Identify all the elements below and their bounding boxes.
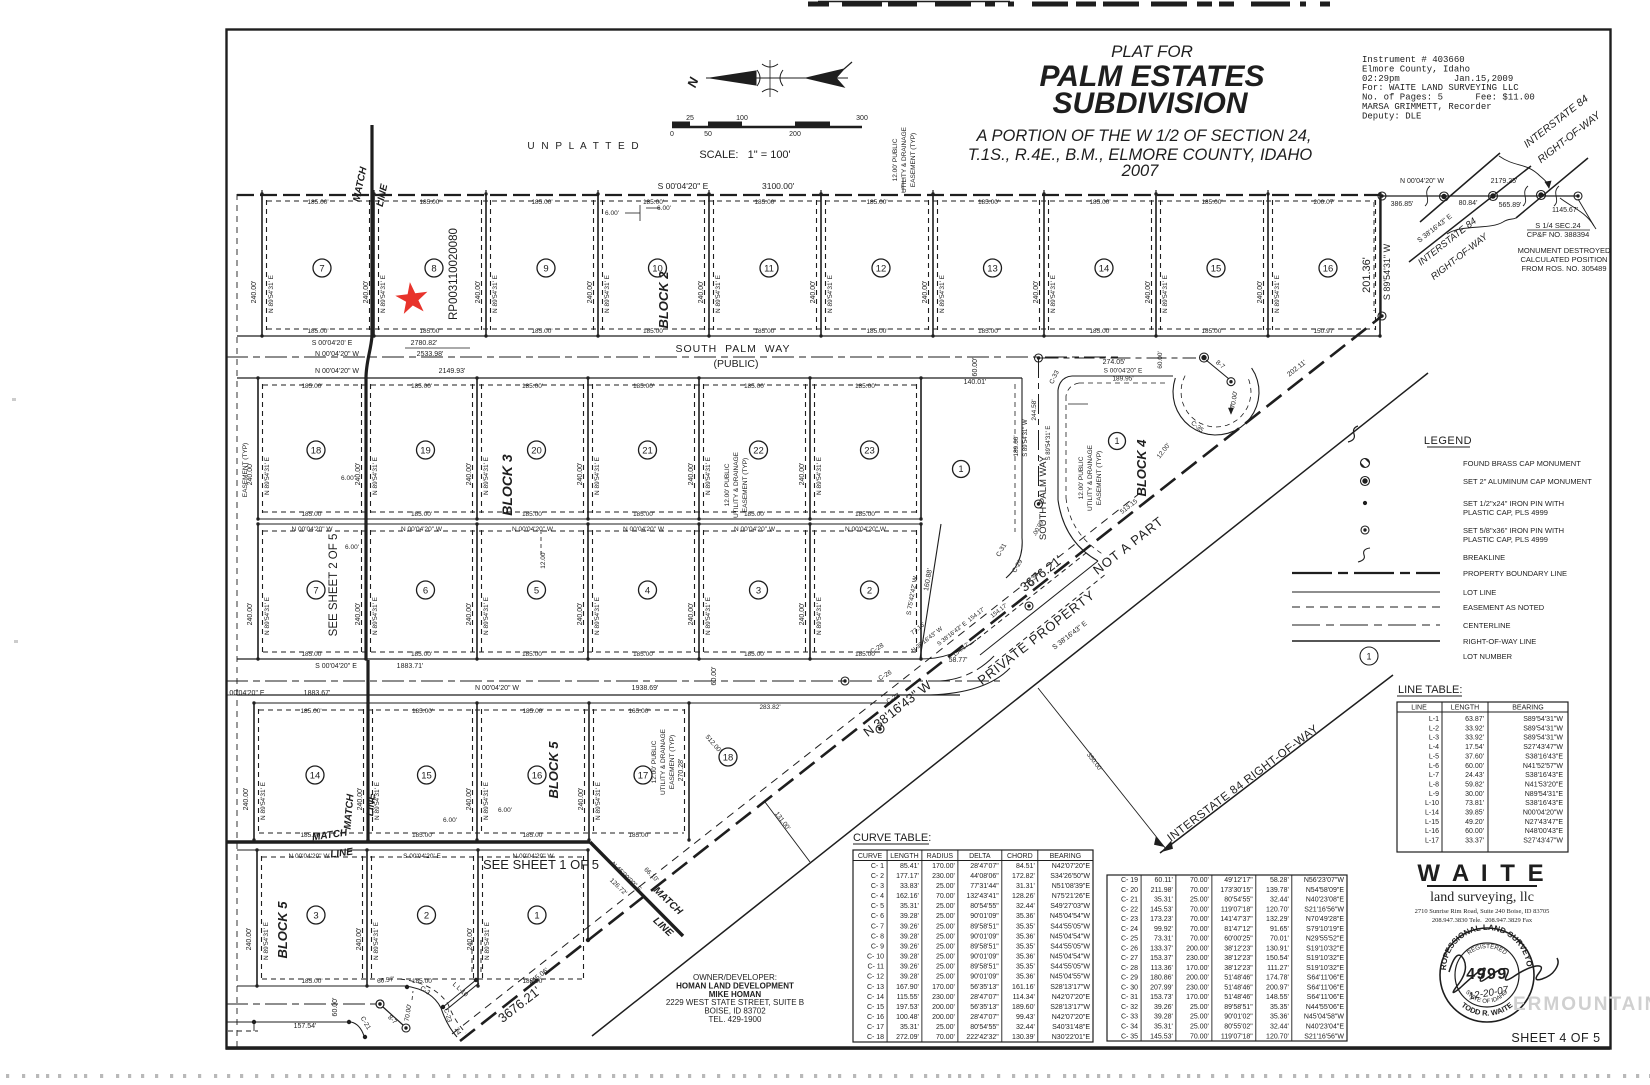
svg-text:60.00': 60.00' xyxy=(1465,763,1484,770)
svg-text:BEARING: BEARING xyxy=(1512,705,1544,712)
svg-text:N 00'04'20" W: N 00'04'20" W xyxy=(315,351,359,358)
svg-text:51'48'46": 51'48'46" xyxy=(1224,975,1253,982)
svg-text:37.60': 37.60' xyxy=(1465,753,1484,760)
svg-text:SCALE: 1" = 100': SCALE: 1" = 100' xyxy=(699,149,790,161)
svg-text:L-16: L-16 xyxy=(1425,828,1439,835)
svg-text:N42'07'20"E: N42'07'20"E xyxy=(1052,863,1091,870)
svg-text:12: 12 xyxy=(876,263,887,274)
svg-text:185.00': 185.00' xyxy=(522,832,543,839)
svg-text:165.00': 165.00' xyxy=(628,708,649,715)
svg-text:185.00': 185.00' xyxy=(633,383,654,390)
svg-text:N45'04'55"W: N45'04'55"W xyxy=(1050,974,1091,981)
svg-text:N 00'04'20" W: N 00'04'20" W xyxy=(845,526,887,533)
svg-text:39.26': 39.26' xyxy=(900,964,919,971)
svg-text:240.00': 240.00' xyxy=(246,928,253,951)
svg-text:200.00': 200.00' xyxy=(932,1014,955,1021)
svg-text:S34'26'50"W: S34'26'50"W xyxy=(1050,873,1090,880)
svg-text:Deputy: DLE: Deputy: DLE xyxy=(1362,111,1421,121)
svg-text:PROPERTY BOUNDARY LINE: PROPERTY BOUNDARY LINE xyxy=(1463,569,1567,578)
svg-text:32.44': 32.44' xyxy=(1016,903,1035,910)
svg-text:14: 14 xyxy=(310,770,321,781)
svg-text:S19'10'32"E: S19'10'32"E xyxy=(1306,955,1344,962)
svg-text:N 89'54'31' E: N 89'54'31' E xyxy=(373,921,380,960)
svg-text:2149.93': 2149.93' xyxy=(439,368,466,375)
svg-text:SEE SHEET 2 OF 5: SEE SHEET 2 OF 5 xyxy=(328,534,340,637)
svg-text:EASEMENT (TYP): EASEMENT (TYP) xyxy=(1096,451,1103,505)
svg-text:N 89'54'31' E: N 89'54'31' E xyxy=(594,456,601,495)
svg-text:25.00': 25.00' xyxy=(936,974,955,981)
svg-text:33.83': 33.83' xyxy=(900,883,919,890)
svg-text:N27'43'47"E: N27'43'47"E xyxy=(1525,819,1564,826)
svg-text:L-7: L-7 xyxy=(1429,772,1439,779)
svg-text:130.39': 130.39' xyxy=(1012,1034,1035,1041)
svg-text:28'47'07": 28'47'07" xyxy=(970,863,999,870)
svg-text:39.28': 39.28' xyxy=(900,933,919,940)
svg-text:38'12'23": 38'12'23" xyxy=(1224,955,1253,962)
svg-text:185.00': 185.00' xyxy=(855,511,876,518)
svg-text:2780.82': 2780.82' xyxy=(411,340,438,347)
svg-text:2710 Sunrise Rim Road, Suite 2: 2710 Sunrise Rim Road, Suite 240 Boise, … xyxy=(1415,908,1550,915)
svg-text:17: 17 xyxy=(638,770,649,781)
svg-text:1883.67': 1883.67' xyxy=(304,690,331,697)
svg-text:U N P L A T T E D: U N P L A T T E D xyxy=(527,141,640,152)
svg-text:N40'23'04"E: N40'23'04"E xyxy=(1306,1024,1345,1031)
svg-text:N 89'54'31' E: N 89'54'31' E xyxy=(939,274,946,313)
svg-text:230.00': 230.00' xyxy=(932,994,955,1001)
svg-text:N 89'54'31' E: N 89'54'31' E xyxy=(268,274,275,313)
svg-text:70.00': 70.00' xyxy=(1190,926,1209,933)
svg-text:C- 14: C- 14 xyxy=(867,994,884,1001)
svg-text:C- 16: C- 16 xyxy=(867,1014,884,1021)
svg-text:C- 26: C- 26 xyxy=(1121,945,1138,952)
svg-text:CP&F NO. 388394: CP&F NO. 388394 xyxy=(1527,230,1590,239)
svg-text:32.44': 32.44' xyxy=(1270,1024,1289,1031)
svg-text:85.41': 85.41' xyxy=(900,863,919,870)
svg-text:C- 32: C- 32 xyxy=(1121,1004,1138,1011)
svg-text:9: 9 xyxy=(543,263,548,274)
svg-text:N 89'54'31' E: N 89'54'31' E xyxy=(264,596,271,635)
svg-text:CURVE TABLE:: CURVE TABLE: xyxy=(853,832,931,844)
svg-text:185.00': 185.00' xyxy=(300,708,321,715)
svg-text:N 89'54'31' E: N 89'54'31' E xyxy=(484,921,491,960)
svg-text:N 89'54'31' E: N 89'54'31' E xyxy=(705,456,712,495)
svg-text:207.99': 207.99' xyxy=(1150,984,1173,991)
svg-text:N 89'54'31' E: N 89'54'31' E xyxy=(264,456,271,495)
svg-text:1: 1 xyxy=(958,464,963,474)
svg-text:BLOCK 5: BLOCK 5 xyxy=(275,901,290,959)
svg-text:50: 50 xyxy=(704,131,712,138)
svg-text:N51'08'39"E: N51'08'39"E xyxy=(1052,883,1091,890)
svg-text:230.00': 230.00' xyxy=(1186,955,1209,962)
svg-text:CURVE: CURVE xyxy=(858,853,883,860)
svg-text:6.00': 6.00' xyxy=(498,807,512,814)
svg-text:185.00': 185.00' xyxy=(419,199,440,206)
svg-text:240.00': 240.00' xyxy=(466,463,473,486)
svg-text:80'54'55": 80'54'55" xyxy=(970,1024,999,1031)
svg-text:22: 22 xyxy=(753,445,764,456)
svg-text:200.07': 200.07' xyxy=(1313,199,1334,206)
svg-text:70.01': 70.01' xyxy=(1270,936,1289,943)
svg-text:80'55'02": 80'55'02" xyxy=(1224,1024,1253,1031)
svg-text:35.31': 35.31' xyxy=(1154,1024,1173,1031)
svg-text:174.78': 174.78' xyxy=(1266,975,1289,982)
svg-text:185.00': 185.00' xyxy=(522,383,543,390)
svg-text:565.89': 565.89' xyxy=(1499,202,1522,209)
svg-text:1883.71': 1883.71' xyxy=(397,663,424,670)
svg-text:185.00': 185.00' xyxy=(522,511,543,518)
svg-text:S44'55'05"W: S44'55'05"W xyxy=(1050,964,1090,971)
svg-text:240.00': 240.00' xyxy=(243,788,250,811)
svg-text:4: 4 xyxy=(645,585,650,596)
svg-text:51'48'46": 51'48'46" xyxy=(1224,994,1253,1001)
svg-text:200.00': 200.00' xyxy=(932,1004,955,1011)
svg-text:C- 23: C- 23 xyxy=(1121,916,1138,923)
svg-text:RP003110020080: RP003110020080 xyxy=(448,228,460,320)
svg-text:240.00': 240.00' xyxy=(475,281,482,304)
svg-text:120.70': 120.70' xyxy=(1266,1033,1289,1040)
svg-text:1: 1 xyxy=(1366,652,1371,662)
svg-text:N 89'54'31' E: N 89'54'31' E xyxy=(604,274,611,313)
svg-text:240.00': 240.00' xyxy=(363,281,370,304)
svg-text:185.00': 185.00' xyxy=(855,383,876,390)
svg-text:S27'43'47"W: S27'43'47"W xyxy=(1523,838,1563,845)
svg-text:LOT NUMBER: LOT NUMBER xyxy=(1463,652,1513,661)
svg-text:81'47'12": 81'47'12" xyxy=(1224,926,1253,933)
svg-text:BLOCK 4: BLOCK 4 xyxy=(1134,439,1149,497)
svg-text:17.54': 17.54' xyxy=(1465,744,1484,751)
svg-text:N00'04'20"W: N00'04'20"W xyxy=(1523,810,1564,817)
svg-text:C- 7: C- 7 xyxy=(871,923,884,930)
svg-text:240.00': 240.00' xyxy=(466,603,473,626)
svg-text:25.00': 25.00' xyxy=(936,1024,955,1031)
svg-text:189.60': 189.60' xyxy=(1012,1004,1035,1011)
svg-text:L-15: L-15 xyxy=(1425,819,1439,826)
svg-text:TEL. 429-1900: TEL. 429-1900 xyxy=(709,1015,762,1024)
svg-text:185.00': 185.00' xyxy=(978,328,999,335)
svg-text:130.91': 130.91' xyxy=(1266,945,1289,952)
svg-text:1938.69': 1938.69' xyxy=(632,685,659,692)
svg-text:150.97': 150.97' xyxy=(1313,328,1334,335)
svg-text:PLASTIC CAP, PLS 4999: PLASTIC CAP, PLS 4999 xyxy=(1463,535,1548,544)
svg-text:200.00': 200.00' xyxy=(1186,975,1209,982)
svg-text:N45'04'54"W: N45'04'54"W xyxy=(1050,933,1091,940)
svg-text:180.86': 180.86' xyxy=(1150,975,1173,982)
svg-text:S28'13'17"W: S28'13'17"W xyxy=(1050,984,1090,991)
svg-text:84.51': 84.51' xyxy=(1016,863,1035,870)
svg-text:39.26': 39.26' xyxy=(1154,1004,1173,1011)
svg-text:33.92': 33.92' xyxy=(1465,725,1484,732)
svg-text:S 00'04'20' E: S 00'04'20' E xyxy=(312,340,353,347)
svg-text:33.92': 33.92' xyxy=(1465,735,1484,742)
svg-text:170.00': 170.00' xyxy=(1186,965,1209,972)
svg-text:39.28': 39.28' xyxy=(900,974,919,981)
svg-text:BREAKLINE: BREAKLINE xyxy=(1463,553,1505,562)
svg-text:200.97': 200.97' xyxy=(1266,984,1289,991)
svg-text:1: 1 xyxy=(534,910,539,921)
svg-text:LENGTH: LENGTH xyxy=(890,853,918,860)
svg-text:C- 35: C- 35 xyxy=(1121,1033,1138,1040)
svg-text:UTILITY & DRAINAGE: UTILITY & DRAINAGE xyxy=(1087,444,1094,511)
svg-text:6.00': 6.00' xyxy=(605,210,619,217)
svg-text:N 89'54'31' E: N 89'54'31' E xyxy=(715,274,722,313)
svg-text:SOUTH PALM WAY: SOUTH PALM WAY xyxy=(676,343,791,355)
svg-text:C- 21: C- 21 xyxy=(1121,897,1138,904)
svg-text:S 89'54'31' E: S 89'54'31' E xyxy=(1046,426,1052,461)
svg-text:25.00': 25.00' xyxy=(936,943,955,950)
svg-text:EASEMENT (TYP): EASEMENT (TYP) xyxy=(742,458,749,512)
svg-text:S79'10'19"E: S79'10'19"E xyxy=(1306,926,1344,933)
svg-text:N 00'04'20" W: N 00'04'20" W xyxy=(401,526,443,533)
svg-text:S 89'54'31" W: S 89'54'31" W xyxy=(1023,419,1029,457)
svg-text:141'47'37": 141'47'37" xyxy=(1220,916,1253,923)
svg-text:25.00': 25.00' xyxy=(1190,1014,1209,1021)
svg-text:N 89'54'31' E: N 89'54'31' E xyxy=(595,781,602,820)
svg-text:N 89'54'31' E: N 89'54'31' E xyxy=(483,781,490,820)
svg-text:MONUMENT DESTROYED: MONUMENT DESTROYED xyxy=(1518,246,1611,255)
svg-text:N 89'54'31' E: N 89'54'31' E xyxy=(816,596,823,635)
svg-text:35.36': 35.36' xyxy=(1016,913,1035,920)
svg-text:11: 11 xyxy=(764,263,774,274)
svg-text:C- 31: C- 31 xyxy=(1121,994,1138,1001)
svg-text:C- 20: C- 20 xyxy=(1121,887,1138,894)
svg-text:N 00'04'20" W: N 00'04'20" W xyxy=(315,368,359,375)
svg-text:274.05': 274.05' xyxy=(1103,359,1126,366)
svg-text:111.27': 111.27' xyxy=(1267,965,1289,972)
svg-text:C- 3: C- 3 xyxy=(871,883,884,890)
svg-text:25.00': 25.00' xyxy=(936,923,955,930)
svg-text:S 00'04'20' E: S 00'04'20' E xyxy=(403,853,441,860)
svg-text:128.26': 128.26' xyxy=(1012,893,1035,900)
svg-text:EASEMENT (TYP): EASEMENT (TYP) xyxy=(242,443,249,497)
svg-text:N29'55'52"E: N29'55'52"E xyxy=(1306,936,1345,943)
svg-text:89'58'51": 89'58'51" xyxy=(970,923,999,930)
svg-text:N41'53'20"E: N41'53'20"E xyxy=(1525,781,1564,788)
svg-text:C- 15: C- 15 xyxy=(867,1004,884,1011)
svg-text:C- 34: C- 34 xyxy=(1121,1024,1138,1031)
svg-text:UTILITY & DRAINAGE: UTILITY & DRAINAGE xyxy=(901,126,908,193)
svg-text:240.00': 240.00' xyxy=(247,603,254,626)
svg-text:119'07'18": 119'07'18" xyxy=(1221,906,1253,913)
svg-text:240.00': 240.00' xyxy=(688,603,695,626)
svg-text:C- 27: C- 27 xyxy=(1121,955,1138,962)
svg-text:49'12'17": 49'12'17" xyxy=(1224,877,1253,884)
svg-text:173.23': 173.23' xyxy=(1150,916,1173,923)
svg-text:C- 6: C- 6 xyxy=(871,913,884,920)
svg-text:L-9: L-9 xyxy=(1429,791,1439,798)
svg-text:S89'54'31"W: S89'54'31"W xyxy=(1523,716,1563,723)
svg-text:39.26': 39.26' xyxy=(900,943,919,950)
svg-text:LEGEND: LEGEND xyxy=(1424,435,1472,447)
svg-text:N 89'54'31' E: N 89'54'31' E xyxy=(705,596,712,635)
svg-text:185.00': 185.00' xyxy=(754,328,775,335)
svg-text:150.54': 150.54' xyxy=(1266,955,1289,962)
svg-text:162.16': 162.16' xyxy=(896,893,919,900)
svg-text:89'58'51": 89'58'51" xyxy=(970,964,999,971)
svg-text:UTILITY & DRAINAGE: UTILITY & DRAINAGE xyxy=(660,728,667,795)
svg-text:2: 2 xyxy=(867,585,872,596)
svg-text:35.36': 35.36' xyxy=(1016,933,1035,940)
svg-text:189.95': 189.95' xyxy=(1112,376,1133,383)
svg-text:CHORD: CHORD xyxy=(1007,853,1033,860)
svg-text:N54'58'09"E: N54'58'09"E xyxy=(1306,887,1345,894)
svg-text:99.92': 99.92' xyxy=(1154,926,1173,933)
svg-text:N56'23'07"W: N56'23'07"W xyxy=(1304,877,1345,884)
svg-text:35.36': 35.36' xyxy=(1270,1014,1289,1021)
svg-text:S27'43'47"W: S27'43'47"W xyxy=(1523,744,1563,751)
svg-text:N 89'54'31' E: N 89'54'31' E xyxy=(816,456,823,495)
svg-text:240.00': 240.00' xyxy=(1033,281,1040,304)
svg-text:153.37': 153.37' xyxy=(1150,955,1173,962)
svg-text:N75'21'26"E: N75'21'26"E xyxy=(1052,893,1091,900)
svg-text:185.00': 185.00' xyxy=(1089,199,1110,206)
svg-text:LOT LINE: LOT LINE xyxy=(1463,588,1496,597)
svg-text:A PORTION OF THE W 1/2 OF SECT: A PORTION OF THE W 1/2 OF SECTION 24, xyxy=(976,127,1312,145)
svg-text:35.35': 35.35' xyxy=(1016,923,1035,930)
svg-text:L-1: L-1 xyxy=(1429,716,1439,723)
svg-text:31.31': 31.31' xyxy=(1016,883,1035,890)
svg-text:59.82': 59.82' xyxy=(1465,781,1484,788)
svg-text:28'47'07": 28'47'07" xyxy=(970,994,999,1001)
svg-text:167.90': 167.90' xyxy=(896,984,919,991)
svg-text:139.78': 139.78' xyxy=(1266,887,1289,894)
svg-text:185.00': 185.00' xyxy=(1089,328,1110,335)
svg-text:N 89'54'31' E: N 89'54'31' E xyxy=(483,456,490,495)
svg-text:C- 28: C- 28 xyxy=(1121,965,1138,972)
svg-text:35.35': 35.35' xyxy=(1016,943,1035,950)
svg-text:77'31'44": 77'31'44" xyxy=(970,883,999,890)
svg-text:197.53': 197.53' xyxy=(896,1004,919,1011)
svg-text:16: 16 xyxy=(532,770,543,781)
svg-text:185.00': 185.00' xyxy=(744,383,765,390)
svg-text:C- 4: C- 4 xyxy=(871,893,884,900)
svg-text:RIGHT-OF-WAY LINE: RIGHT-OF-WAY LINE xyxy=(1463,637,1536,646)
svg-text:60'00'25": 60'00'25" xyxy=(1224,936,1253,943)
svg-text:185.00': 185.00' xyxy=(633,651,654,658)
svg-text:N 00'04'20" W: N 00'04'20" W xyxy=(734,526,776,533)
svg-text:185.00': 185.00' xyxy=(978,199,999,206)
svg-text:56'35'13": 56'35'13" xyxy=(970,1004,999,1011)
svg-text:230.00': 230.00' xyxy=(1186,984,1209,991)
svg-text:SET 2" ALUMINUM CAP MONUMENT: SET 2" ALUMINUM CAP MONUMENT xyxy=(1463,477,1592,486)
svg-text:C- 19: C- 19 xyxy=(1121,877,1138,884)
svg-text:S38'16'43"E: S38'16'43"E xyxy=(1525,772,1563,779)
svg-text:70.00': 70.00' xyxy=(1190,877,1209,884)
svg-text:133.37': 133.37' xyxy=(1150,945,1173,952)
svg-text:1: 1 xyxy=(1114,436,1119,446)
svg-text:90'01'09": 90'01'09" xyxy=(970,954,999,961)
svg-text:0: 0 xyxy=(670,131,674,138)
svg-text:S19'10'32"E: S19'10'32"E xyxy=(1306,965,1344,972)
svg-text:SUBDIVISION: SUBDIVISION xyxy=(1052,87,1248,120)
svg-text:70.00': 70.00' xyxy=(1190,906,1209,913)
svg-text:N30'22'01"E: N30'22'01"E xyxy=(1052,1034,1091,1041)
svg-text:C- 30: C- 30 xyxy=(1121,984,1138,991)
svg-text:240.00': 240.00' xyxy=(577,463,584,486)
svg-text:6.00': 6.00' xyxy=(443,817,457,824)
svg-text:3: 3 xyxy=(313,910,318,921)
svg-text:C- 22: C- 22 xyxy=(1121,906,1138,913)
svg-text:240.00': 240.00' xyxy=(466,788,473,811)
svg-text:7: 7 xyxy=(313,585,318,596)
svg-text:C- 10: C- 10 xyxy=(867,954,884,961)
svg-text:N48'00'43"E: N48'00'43"E xyxy=(1525,828,1564,835)
svg-text:185.00': 185.00' xyxy=(301,651,322,658)
svg-text:S21'16'56"W: S21'16'56"W xyxy=(1304,1033,1344,1040)
svg-text:38'12'23": 38'12'23" xyxy=(1224,965,1253,972)
svg-text:13: 13 xyxy=(987,263,998,274)
svg-text:185.00': 185.00' xyxy=(744,651,765,658)
svg-text:S28'13'17"W: S28'13'17"W xyxy=(1050,1004,1090,1011)
svg-text:N 89'54'31' E: N 89'54'31' E xyxy=(492,274,499,313)
svg-text:N 00'04'20" W: N 00'04'20" W xyxy=(289,853,331,860)
svg-text:C- 12: C- 12 xyxy=(867,974,884,981)
svg-text:35.36': 35.36' xyxy=(1016,954,1035,961)
svg-text:35.36': 35.36' xyxy=(1016,974,1035,981)
svg-text:240.00': 240.00' xyxy=(799,603,806,626)
svg-text:140.01': 140.01' xyxy=(964,379,987,386)
svg-text:25.00': 25.00' xyxy=(936,913,955,920)
svg-text:2533.98': 2533.98' xyxy=(417,351,444,358)
svg-text:6: 6 xyxy=(423,585,428,596)
svg-text:BEARING: BEARING xyxy=(1050,853,1082,860)
svg-text:60.00': 60.00' xyxy=(1157,351,1164,369)
svg-text:L-8: L-8 xyxy=(1429,781,1439,788)
svg-text:25.00': 25.00' xyxy=(936,964,955,971)
svg-text:58.77': 58.77' xyxy=(949,657,968,664)
svg-text:BLOCK 3: BLOCK 3 xyxy=(499,454,515,516)
svg-text:172.82': 172.82' xyxy=(1012,873,1035,880)
svg-text:5: 5 xyxy=(534,585,539,596)
svg-text:N 89'54'31' E: N 89'54'31' E xyxy=(374,781,381,820)
svg-text:N 89'54'31' E: N 89'54'31' E xyxy=(372,596,379,635)
svg-text:35.31': 35.31' xyxy=(1154,897,1173,904)
svg-text:170.00': 170.00' xyxy=(932,863,955,870)
svg-text:2007: 2007 xyxy=(1121,162,1160,180)
svg-text:240.00': 240.00' xyxy=(357,788,364,811)
svg-text:60.00': 60.00' xyxy=(972,358,979,377)
svg-text:185.00': 185.00' xyxy=(301,511,322,518)
svg-text:20: 20 xyxy=(531,445,542,456)
svg-text:240.00': 240.00' xyxy=(810,281,817,304)
svg-text:185.00': 185.00' xyxy=(412,832,433,839)
svg-text:SEE SHEET 1 OF 5: SEE SHEET 1 OF 5 xyxy=(483,857,599,872)
svg-text:185.00': 185.00' xyxy=(301,383,322,390)
svg-text:ERMOUNTAIN: ERMOUNTAIN xyxy=(1513,994,1650,1015)
svg-text:S 1/4 SEC.24: S 1/4 SEC.24 xyxy=(1535,221,1580,230)
svg-text:80'54'55": 80'54'55" xyxy=(1224,897,1253,904)
svg-text:90'01'02": 90'01'02" xyxy=(1224,1014,1253,1021)
svg-text:200.00': 200.00' xyxy=(1186,945,1209,952)
svg-text:28'47'07": 28'47'07" xyxy=(970,1014,999,1021)
svg-text:N40'23'08"E: N40'23'08"E xyxy=(1306,897,1345,904)
svg-text:C- 5: C- 5 xyxy=(871,903,884,910)
svg-text:L-14: L-14 xyxy=(1425,810,1439,817)
svg-text:N42'07'20"E: N42'07'20"E xyxy=(1052,1014,1091,1021)
svg-text:39.26': 39.26' xyxy=(900,923,919,930)
svg-text:S49'27'03"W: S49'27'03"W xyxy=(1050,903,1090,910)
svg-text:N 89'54'31' E: N 89'54'31' E xyxy=(483,596,490,635)
svg-text:21: 21 xyxy=(642,445,653,456)
svg-text:C- 2: C- 2 xyxy=(871,873,884,880)
svg-text:N45'04'58"W: N45'04'58"W xyxy=(1304,1014,1345,1021)
svg-text:N 89'54'31' E: N 89'54'31' E xyxy=(1050,274,1057,313)
svg-text:70.00': 70.00' xyxy=(1190,916,1209,923)
svg-text:FOUND BRASS CAP MONUMENT: FOUND BRASS CAP MONUMENT xyxy=(1463,459,1581,468)
svg-text:00'04'20" E: 00'04'20" E xyxy=(229,690,264,697)
svg-text:170.00': 170.00' xyxy=(1186,994,1209,1001)
svg-text:N 89'54'31' E: N 89'54'31' E xyxy=(372,456,379,495)
svg-text:32.44': 32.44' xyxy=(1270,897,1289,904)
